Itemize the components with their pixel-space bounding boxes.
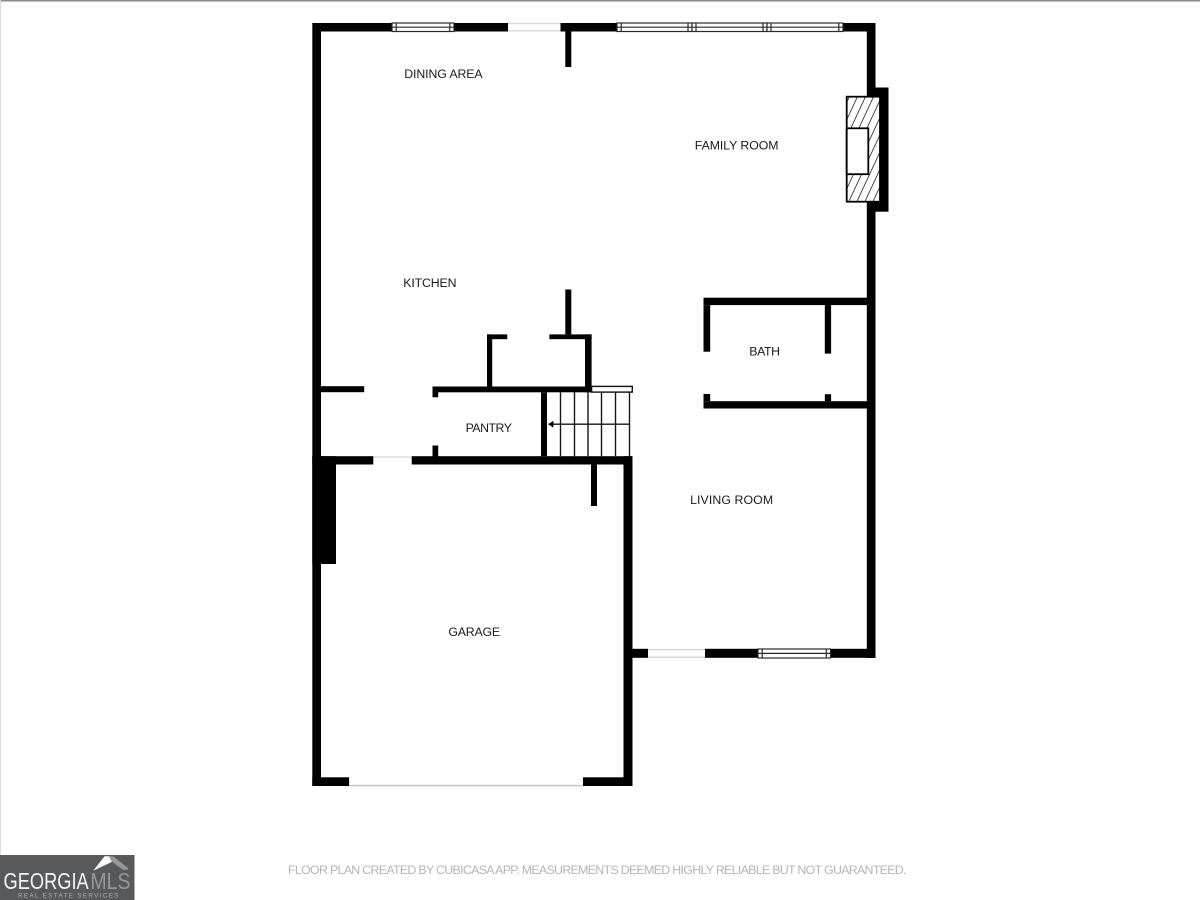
svg-text:KITCHEN: KITCHEN bbox=[403, 276, 456, 290]
svg-text:DINING AREA: DINING AREA bbox=[404, 67, 483, 81]
svg-text:FAMILY ROOM: FAMILY ROOM bbox=[695, 139, 779, 153]
svg-text:MLS: MLS bbox=[90, 868, 130, 894]
svg-text:LIVING ROOM: LIVING ROOM bbox=[690, 493, 773, 507]
svg-text:REAL ESTATE SERVICES: REAL ESTATE SERVICES bbox=[18, 892, 118, 899]
svg-text:GARAGE: GARAGE bbox=[448, 625, 500, 639]
svg-text:BATH: BATH bbox=[749, 344, 780, 358]
svg-text:GEORGIA: GEORGIA bbox=[4, 868, 90, 894]
svg-text:PANTRY: PANTRY bbox=[466, 421, 512, 435]
svg-text:FLOOR PLAN CREATED BY CUBICASA: FLOOR PLAN CREATED BY CUBICASA APP. MEAS… bbox=[288, 863, 907, 877]
